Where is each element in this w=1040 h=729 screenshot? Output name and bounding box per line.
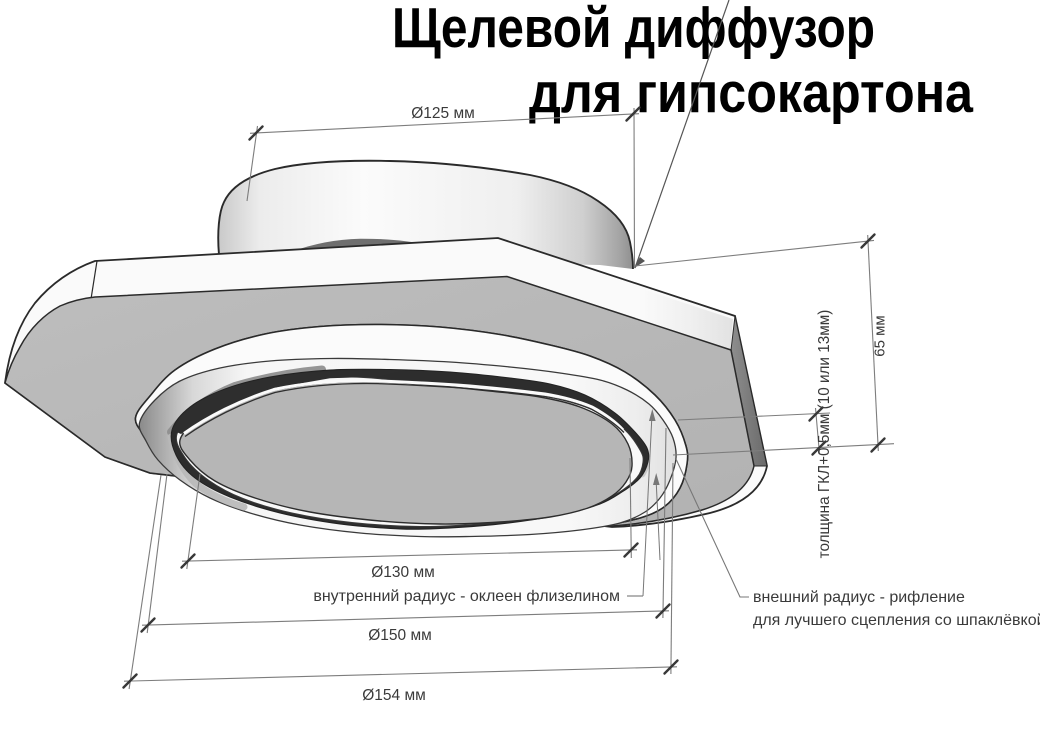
svg-text:внешний радиус - рифление: внешний радиус - рифление <box>753 589 965 606</box>
svg-text:для лучшего сцепления со шпакл: для лучшего сцепления со шпаклёвкой <box>753 612 1040 629</box>
svg-text:Ø125 мм: Ø125 мм <box>411 105 475 122</box>
svg-text:Ø150 мм: Ø150 мм <box>368 627 432 644</box>
svg-text:толщина ГКЛ+0,5мм (10 или 13мм: толщина ГКЛ+0,5мм (10 или 13мм) <box>816 310 833 559</box>
svg-text:Щелевой диффузор: Щелевой диффузор <box>392 0 875 60</box>
svg-text:внутренний радиус - оклеен фли: внутренний радиус - оклеен флизелином <box>313 588 620 605</box>
svg-text:Ø154 мм: Ø154 мм <box>362 687 426 704</box>
svg-text:Ø130 мм: Ø130 мм <box>371 564 435 581</box>
svg-text:65 мм: 65 мм <box>872 315 889 356</box>
